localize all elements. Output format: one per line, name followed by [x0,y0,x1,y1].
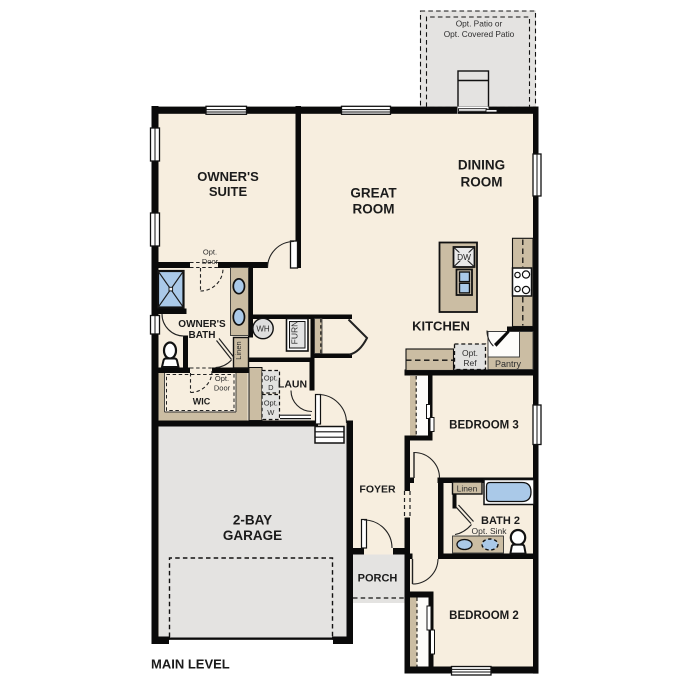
svg-text:Linen: Linen [234,341,243,359]
svg-text:W: W [267,408,275,417]
svg-text:GARAGE: GARAGE [223,528,282,543]
svg-text:Pantry: Pantry [495,359,522,369]
svg-text:ROOM: ROOM [353,202,395,217]
svg-text:KITCHEN: KITCHEN [412,319,470,334]
svg-text:Ref: Ref [463,358,477,368]
svg-text:Opt.: Opt. [264,374,278,383]
svg-text:Opt.: Opt. [462,348,478,358]
svg-text:BATH: BATH [188,330,215,341]
svg-text:BEDROOM 2: BEDROOM 2 [449,610,519,622]
svg-text:ROOM: ROOM [461,175,503,190]
svg-text:Opt. Patio or: Opt. Patio or [456,19,503,29]
svg-text:FOYER: FOYER [359,484,396,496]
svg-text:2-BAY: 2-BAY [233,513,272,528]
svg-text:Opt. Covered Patio: Opt. Covered Patio [444,29,515,39]
svg-text:PORCH: PORCH [358,573,398,585]
svg-text:GREAT: GREAT [350,186,397,201]
svg-text:FURN: FURN [290,321,300,345]
svg-text:WIC: WIC [193,397,211,407]
svg-text:D: D [268,383,274,392]
svg-text:Door: Door [202,257,219,266]
svg-text:DINING: DINING [458,158,505,173]
svg-text:Opt.: Opt. [203,248,217,257]
svg-text:OWNER'S: OWNER'S [178,319,226,330]
svg-text:DW: DW [457,252,471,262]
svg-text:WH: WH [256,325,270,334]
svg-text:Opt. Sink: Opt. Sink [472,526,508,536]
svg-text:BATH 2: BATH 2 [481,515,520,527]
svg-text:Linen: Linen [457,484,478,494]
svg-text:LAUN: LAUN [278,379,307,391]
svg-text:OWNER'S: OWNER'S [197,169,259,184]
svg-text:SUITE: SUITE [209,184,248,199]
svg-text:Opt.: Opt. [215,374,229,383]
svg-text:Door: Door [214,384,231,393]
svg-text:MAIN LEVEL: MAIN LEVEL [151,657,230,672]
svg-text:BEDROOM 3: BEDROOM 3 [449,420,519,432]
svg-text:Opt.: Opt. [264,399,278,408]
